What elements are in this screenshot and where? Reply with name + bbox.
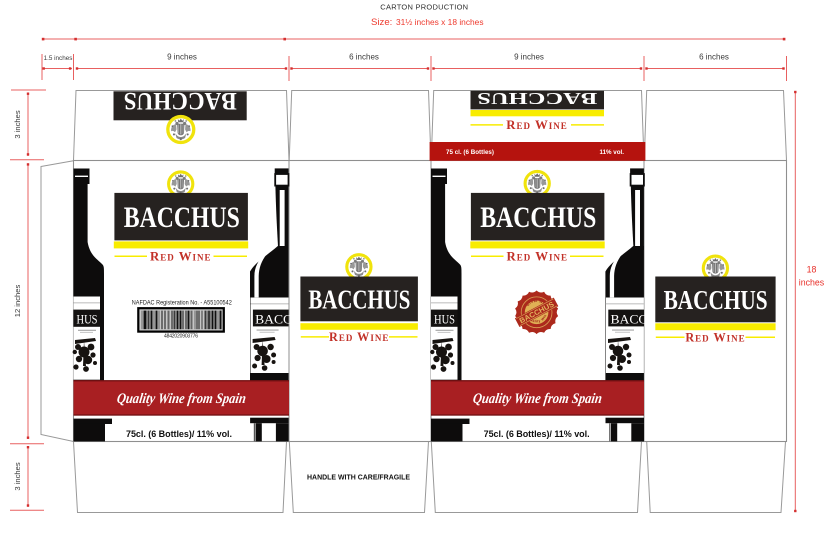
- svg-text:9 inches: 9 inches: [167, 53, 197, 62]
- svg-text:BACCHUS: BACCHUS: [480, 201, 596, 234]
- svg-text:12 inches: 12 inches: [13, 285, 22, 318]
- svg-text:BACCHUS: BACCHUS: [664, 284, 768, 315]
- svg-text:11% vol.: 11% vol.: [600, 149, 625, 156]
- svg-text:Red Wine: Red Wine: [685, 330, 745, 344]
- svg-text:BACC: BACC: [255, 312, 292, 326]
- svg-text:75cl. (6 Bottles)/ 11% vol.: 75cl. (6 Bottles)/ 11% vol.: [126, 429, 232, 439]
- svg-text:BACCHUS: BACCHUS: [477, 89, 597, 108]
- svg-text:Quality Wine from Spain: Quality Wine from Spain: [116, 391, 247, 407]
- svg-text:75cl. (6 Bottles)/ 11% vol.: 75cl. (6 Bottles)/ 11% vol.: [484, 429, 590, 439]
- svg-text:1.5 inches: 1.5 inches: [44, 55, 73, 62]
- svg-text:NAFDAC Registeration No. - A55: NAFDAC Registeration No. - A55100542: [132, 300, 232, 307]
- svg-text:CARTON PRODUCTION: CARTON PRODUCTION: [380, 3, 468, 12]
- svg-text:Red Wine: Red Wine: [329, 330, 389, 344]
- svg-text:18: 18: [807, 265, 817, 275]
- svg-text:6 inches: 6 inches: [699, 53, 729, 62]
- svg-text:3 inches: 3 inches: [13, 110, 22, 138]
- svg-text:Quality Wine from Spain: Quality Wine from Spain: [472, 391, 603, 407]
- svg-text:9 inches: 9 inches: [514, 53, 544, 62]
- svg-text:3 inches: 3 inches: [13, 462, 22, 490]
- svg-text:Red Wine: Red Wine: [150, 249, 212, 263]
- svg-text:Red Wine: Red Wine: [506, 118, 568, 132]
- svg-text:BACC: BACC: [611, 312, 648, 326]
- svg-text:75 cl. (6 Bottles): 75 cl. (6 Bottles): [446, 149, 494, 156]
- svg-text:inches: inches: [799, 278, 825, 288]
- svg-text:BACCHUS: BACCHUS: [124, 201, 240, 234]
- svg-text:HUS: HUS: [77, 313, 98, 327]
- svg-text:6 inches: 6 inches: [349, 53, 379, 62]
- svg-text:Size: 31½ inches x 18 inches: Size: 31½ inches x 18 inches: [371, 17, 484, 28]
- svg-text:HANDLE WITH CARE/FRAGILE: HANDLE WITH CARE/FRAGILE: [307, 475, 410, 482]
- svg-text:BACCHUS: BACCHUS: [308, 285, 410, 315]
- svg-text:BACCHUS: BACCHUS: [124, 87, 237, 114]
- svg-text:Red Wine: Red Wine: [507, 249, 569, 263]
- svg-text:HUS: HUS: [434, 313, 455, 327]
- svg-text:4842020903776: 4842020903776: [164, 334, 198, 340]
